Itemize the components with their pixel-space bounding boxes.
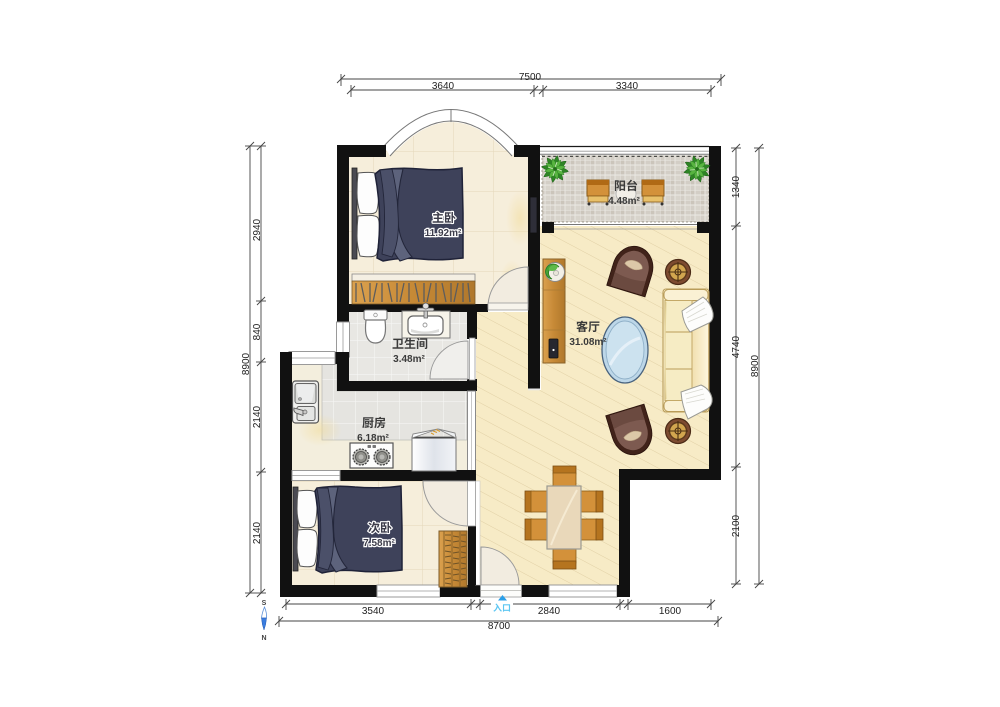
svg-text:8900: 8900 — [750, 354, 761, 377]
svg-text:2940: 2940 — [252, 218, 263, 241]
svg-text:3.48m²: 3.48m² — [393, 354, 425, 365]
svg-text:1340: 1340 — [731, 175, 742, 198]
svg-text:N: N — [261, 635, 266, 642]
svg-text:2140: 2140 — [252, 405, 263, 428]
svg-text:7.58m²: 7.58m² — [363, 538, 395, 549]
svg-text:4.48m²: 4.48m² — [608, 196, 640, 207]
svg-text:4740: 4740 — [731, 335, 742, 358]
svg-text:2840: 2840 — [538, 606, 561, 617]
svg-text:6.18m²: 6.18m² — [357, 433, 389, 444]
svg-text:7500: 7500 — [519, 72, 542, 83]
svg-text:11.92m²: 11.92m² — [425, 228, 462, 239]
svg-text:2100: 2100 — [731, 514, 742, 537]
svg-text:3540: 3540 — [362, 606, 385, 617]
svg-text:31.08m²: 31.08m² — [569, 337, 607, 348]
svg-text:3640: 3640 — [432, 81, 455, 92]
svg-text:2140: 2140 — [252, 521, 263, 544]
svg-text:840: 840 — [252, 323, 263, 340]
svg-text:8900: 8900 — [241, 352, 252, 375]
svg-text:8700: 8700 — [488, 621, 511, 632]
svg-text:1600: 1600 — [659, 606, 682, 617]
svg-text:3340: 3340 — [616, 81, 639, 92]
svg-text:S: S — [262, 600, 267, 607]
